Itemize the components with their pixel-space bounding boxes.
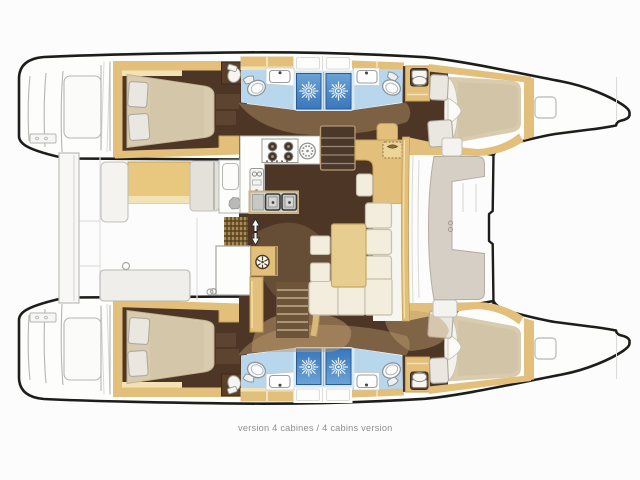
svg-text:version 4 cabines / 4 cabins v: version 4 cabines / 4 cabins version — [238, 423, 393, 433]
